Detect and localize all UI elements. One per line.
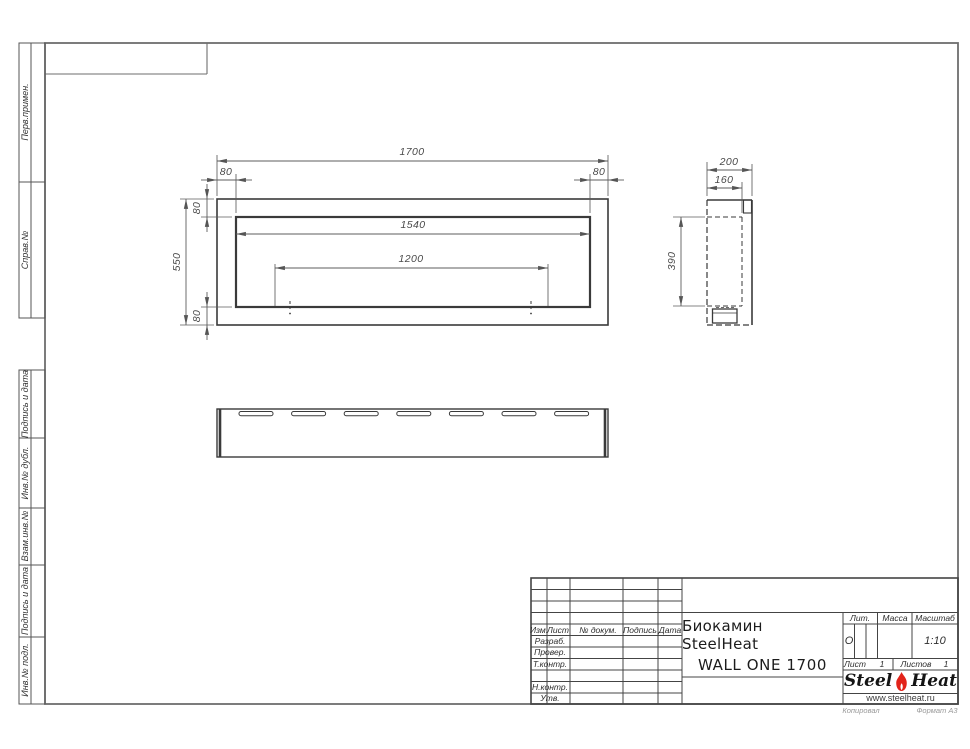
stamp-label-inv-podl: Инв.№ подл. — [19, 605, 31, 735]
stamp-label-sprav-no: Справ.№ — [19, 185, 31, 315]
dim-flange-right: 80 — [577, 165, 621, 179]
tb-col-doc: № докум. — [576, 624, 620, 636]
dim-flange-top: 80 — [190, 186, 204, 230]
tb-scale-label: Масштаб — [915, 612, 955, 624]
tb-row-utv: Утв. — [530, 692, 570, 704]
steelheat-logo: Steel Heat — [843, 669, 958, 693]
flame-icon — [894, 672, 909, 691]
dim-inner-width: 1540 — [391, 218, 435, 232]
footer-copy-label: Копировал — [826, 706, 896, 716]
dim-flange-bottom: 80 — [190, 294, 204, 338]
drawing-sheet: Перв.примен. Справ.№ Подпись и дата Инв.… — [0, 0, 970, 749]
logo-word-heat: Heat — [911, 671, 957, 691]
dim-burner-length: 1200 — [389, 252, 433, 266]
tb-row-prover: Провер. — [530, 646, 570, 658]
document-title-line2: WALL ONE 1700 — [698, 656, 827, 674]
dim-total-height: 550 — [170, 240, 184, 284]
stamp-label-perv-primen: Перв.примен. — [19, 47, 31, 177]
tb-lit-label: Лит. — [840, 612, 880, 624]
tb-mass-label: Масса — [875, 612, 915, 624]
logo-url: www.steelheat.ru — [843, 693, 958, 704]
dim-depth: 200 — [707, 155, 751, 169]
tb-lit-value: О — [841, 634, 857, 648]
logo-word-steel: Steel — [844, 671, 892, 691]
dim-inner-depth: 160 — [702, 173, 746, 187]
tb-scale-value: 1:10 — [913, 634, 957, 648]
tb-row-tkontr: Т.контр. — [530, 658, 570, 670]
dim-inner-height: 390 — [665, 239, 679, 283]
dim-flange-left: 80 — [204, 165, 248, 179]
document-title: Биокамин SteelHeat WALL ONE 1700 — [682, 613, 843, 677]
footer-format-label: Формат А3 — [902, 706, 970, 716]
document-title-line1: Биокамин SteelHeat — [682, 617, 843, 653]
dim-total-width: 1700 — [390, 145, 434, 159]
